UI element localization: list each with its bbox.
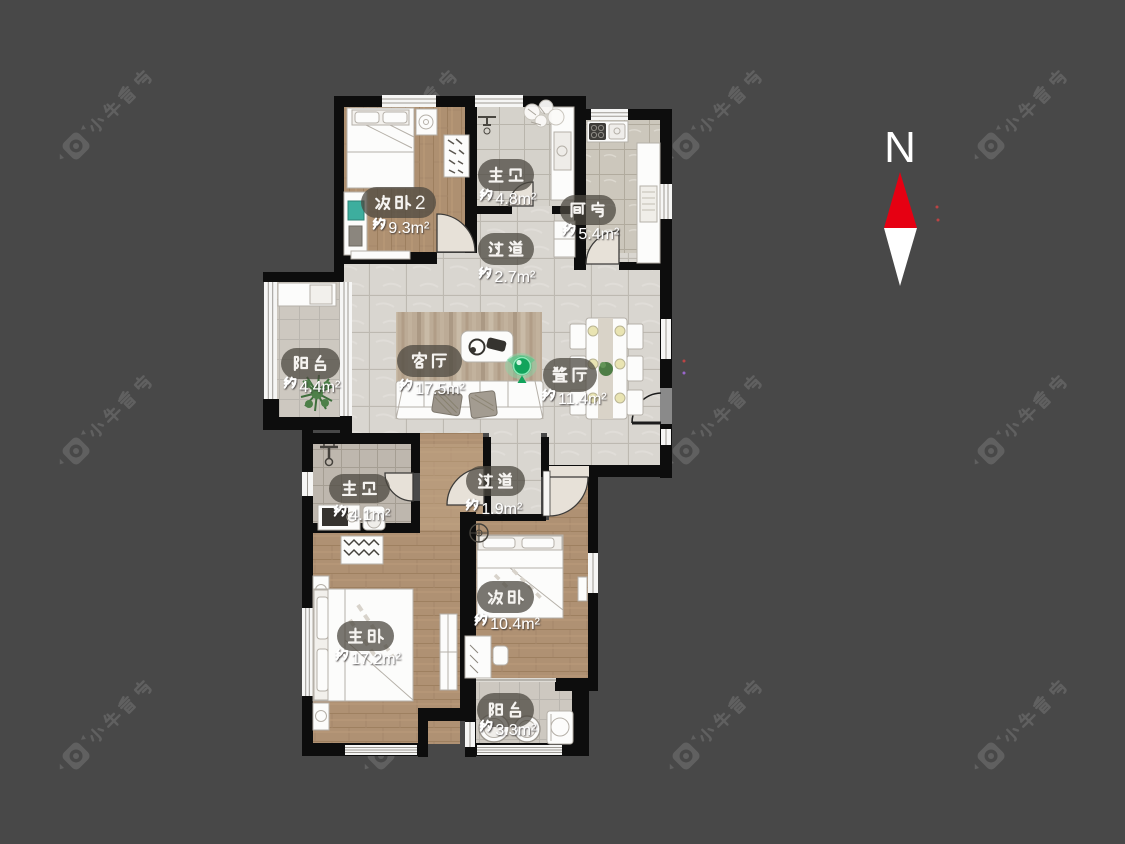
svg-text:11.4m²: 11.4m² xyxy=(558,391,607,408)
svg-text:2: 2 xyxy=(415,193,426,214)
svg-text:17.5m²: 17.5m² xyxy=(415,381,465,398)
svg-text:4.4m²: 4.4m² xyxy=(299,379,341,396)
svg-text:2.7m²: 2.7m² xyxy=(494,269,536,286)
svg-text:N: N xyxy=(884,123,916,172)
svg-text:5.4m²: 5.4m² xyxy=(578,226,620,243)
svg-text:17.2m²: 17.2m² xyxy=(351,651,401,668)
svg-text:10.4m²: 10.4m² xyxy=(490,616,540,633)
svg-text:4.1m²: 4.1m² xyxy=(349,507,391,524)
svg-text:4.8m²: 4.8m² xyxy=(495,191,537,208)
svg-text:3.3m²: 3.3m² xyxy=(495,722,537,739)
svg-text:1.9m²: 1.9m² xyxy=(481,501,523,518)
svg-text:9.3m²: 9.3m² xyxy=(388,220,430,237)
